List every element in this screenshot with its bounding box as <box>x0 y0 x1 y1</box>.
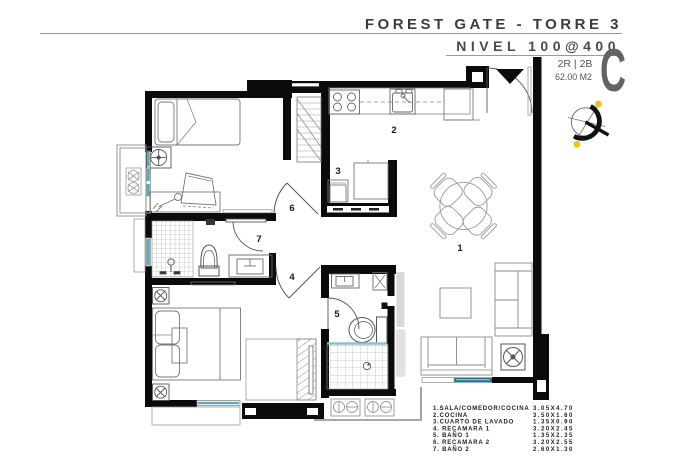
svg-text:62.00 M2: 62.00 M2 <box>555 72 592 82</box>
svg-text:4: 4 <box>289 272 295 283</box>
svg-text:3.CUARTO DE LAVADO: 3.CUARTO DE LAVADO <box>433 420 514 426</box>
svg-text:3.20X2.45: 3.20X2.45 <box>533 426 574 432</box>
svg-text:2.COCINA: 2.COCINA <box>433 413 468 419</box>
svg-text:1.35X2.35: 1.35X2.35 <box>533 433 574 439</box>
svg-text:2R | 2B: 2R | 2B <box>558 58 593 70</box>
svg-text:NIVEL 100@400: NIVEL 100@400 <box>456 38 620 54</box>
svg-text:7: 7 <box>256 234 261 245</box>
svg-text:3.05X4.70: 3.05X4.70 <box>533 406 574 412</box>
svg-text:1: 1 <box>457 243 463 254</box>
svg-text:5. BAÑO 1: 5. BAÑO 1 <box>433 432 470 439</box>
svg-text:FOREST GATE - TORRE 3: FOREST GATE - TORRE 3 <box>365 16 622 33</box>
svg-text:1.35X0.90: 1.35X0.90 <box>533 420 574 426</box>
svg-text:2.60X1.30: 2.60X1.30 <box>533 447 574 453</box>
svg-text:6. RECAMARA 2: 6. RECAMARA 2 <box>433 440 490 446</box>
svg-text:6: 6 <box>289 203 294 214</box>
svg-text:C: C <box>600 38 626 105</box>
svg-text:7. BAÑO 2: 7. BAÑO 2 <box>433 446 470 453</box>
svg-text:3.20X2.55: 3.20X2.55 <box>533 440 574 446</box>
svg-text:2: 2 <box>391 125 396 136</box>
svg-text:1.SALA/COMEDOR/COCINA: 1.SALA/COMEDOR/COCINA <box>433 406 529 412</box>
svg-text:3.50X1.60: 3.50X1.60 <box>533 413 574 419</box>
svg-text:4. RECAMARA 1: 4. RECAMARA 1 <box>433 426 490 432</box>
svg-text:3: 3 <box>335 166 340 177</box>
svg-text:5: 5 <box>334 309 340 320</box>
